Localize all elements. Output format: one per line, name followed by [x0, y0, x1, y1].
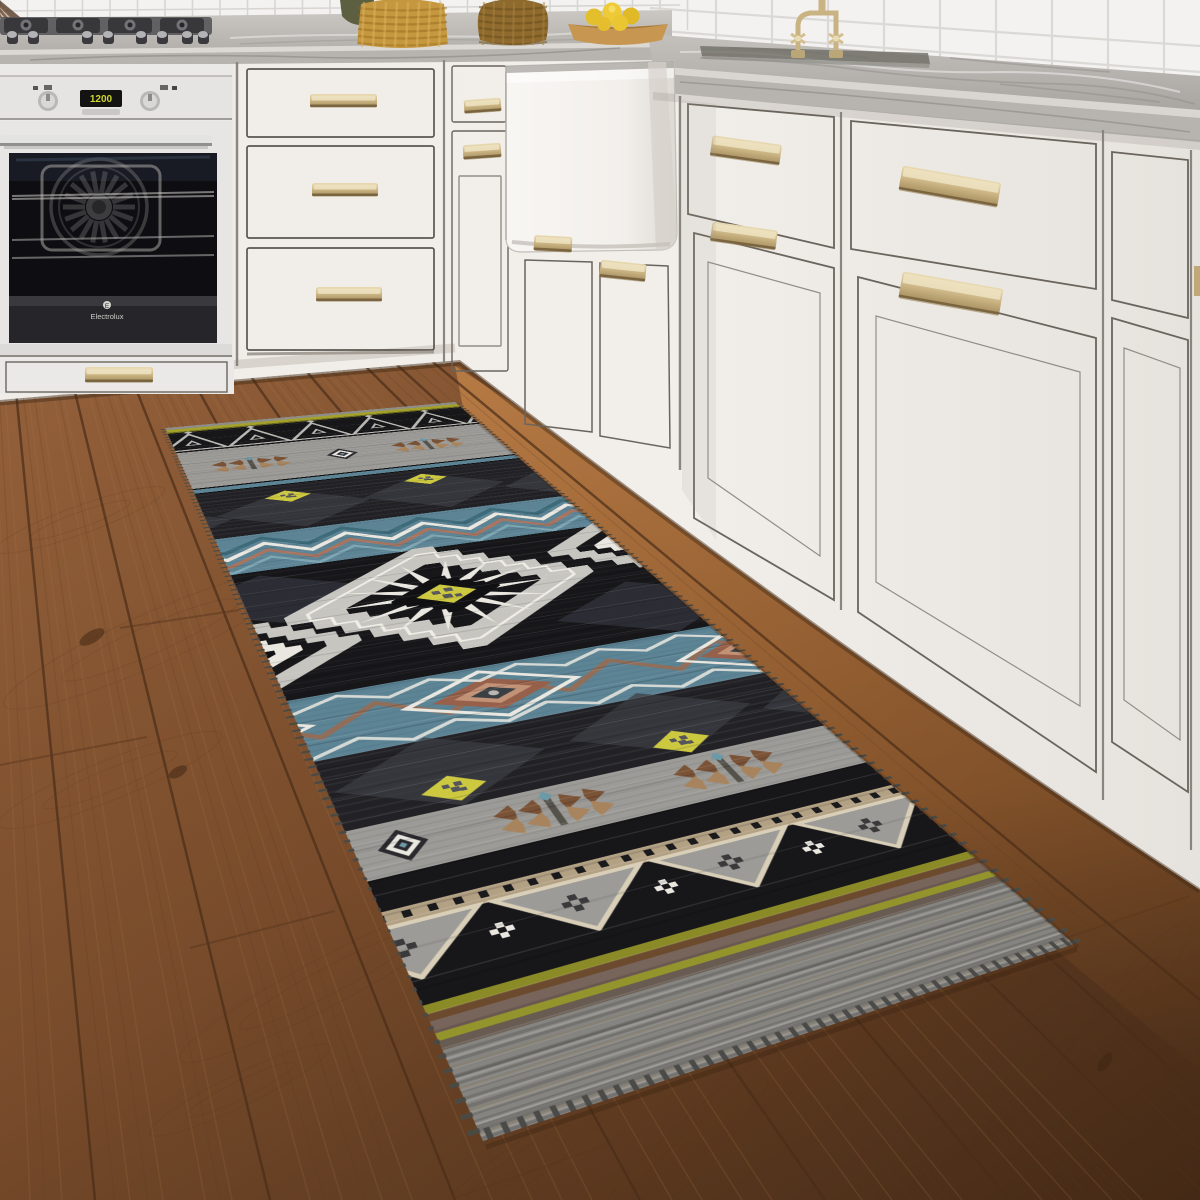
svg-text:1200: 1200 [90, 94, 113, 105]
svg-text:E: E [105, 303, 110, 310]
svg-text:Electrolux: Electrolux [91, 312, 124, 321]
